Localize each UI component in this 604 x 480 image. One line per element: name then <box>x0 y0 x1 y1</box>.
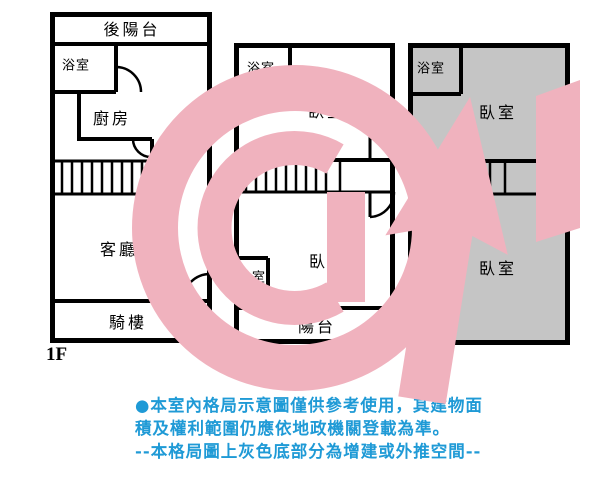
disclaimer-line-3: --本格局圖上灰色底部分為增建或外推空間-- <box>135 440 483 463</box>
room-label-living-room: 客廳 <box>100 236 138 260</box>
room-label-bathroom-1f: 浴室 <box>62 55 90 74</box>
door-arc <box>116 67 141 92</box>
room-label-kitchen: 廚房 <box>93 105 131 129</box>
door-arc <box>133 139 151 157</box>
door-arc <box>183 274 210 301</box>
floor-label-2f: 2F <box>236 344 257 366</box>
floorplan-2f <box>234 43 395 342</box>
room-label-arcade: 騎樓 <box>109 309 147 333</box>
stairs-1f <box>52 161 152 194</box>
room-label-bathroom-2f-bottom: 浴室 <box>238 267 266 286</box>
room-label-balcony-2f: 陽台 <box>298 313 336 337</box>
room-label-rear-balcony: 後陽台 <box>103 16 160 40</box>
stairs-2f <box>234 160 395 192</box>
room-label-bathroom-3f-top: 浴室 <box>417 58 445 77</box>
floorplan-image: 後陽台 浴室 廚房 客廳 騎樓 1F 浴室 臥室 浴室 臥室 陽台 2F 浴室 … <box>0 0 604 480</box>
room-label-bedroom-2f-top: 臥室 <box>308 98 346 122</box>
floor-label-1f: 1F <box>46 344 67 366</box>
disclaimer-line-2: 積及權利範圍仍應依地政機關登載為準。 <box>135 417 483 440</box>
disclaimer-text: ●本室內格局示意圖僅供參考使用，其建物面 積及權利範圍仍應依地政機關登載為準。 … <box>135 394 483 463</box>
room-label-bedroom-2f-bottom: 臥室 <box>309 248 347 272</box>
floor-label-3f: 3F <box>410 346 431 368</box>
room-label-bedroom-3f-top: 臥室 <box>479 99 517 123</box>
room-label-bathroom-2f-top: 浴室 <box>247 58 275 77</box>
disclaimer-line-1: ●本室內格局示意圖僅供參考使用，其建物面 <box>135 394 483 417</box>
room-label-bathroom-3f-bottom: 浴室 <box>416 300 444 319</box>
room-label-bedroom-3f-bottom: 臥室 <box>479 255 517 279</box>
door-arc <box>238 283 263 308</box>
